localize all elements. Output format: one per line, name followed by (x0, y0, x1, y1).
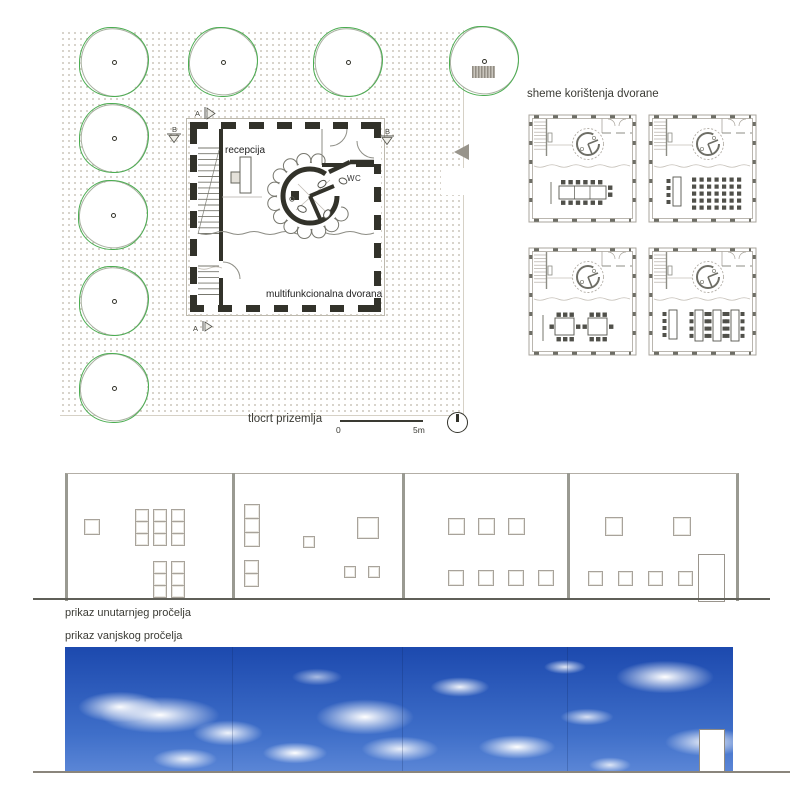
facade-panel-joint (567, 647, 568, 772)
window-opening (508, 570, 524, 586)
plan-caption: tlocrt prizemlja (248, 413, 322, 425)
scheme-drawing-meeting-tables (528, 247, 638, 356)
sky-photo-facade (65, 647, 733, 772)
section-marker-b-left: B (167, 125, 181, 143)
window-opening (171, 585, 185, 598)
svg-text:B: B (385, 127, 390, 136)
facade-panel-joint (232, 647, 233, 772)
scale-bar (340, 420, 423, 422)
window-opening (244, 532, 260, 547)
window-opening (244, 573, 259, 587)
interior-ground-line (33, 598, 770, 600)
section-marker-a-bottom: A (193, 321, 212, 333)
window-opening (538, 570, 554, 586)
elevation-divider (567, 473, 570, 600)
reception-label: recepcija (225, 145, 265, 156)
window-opening (344, 566, 356, 578)
window-opening (368, 566, 380, 578)
scheme-drawing-classroom (648, 247, 758, 356)
svg-text:A: A (193, 324, 198, 333)
scheme-drawing-theatre (648, 114, 758, 223)
scheme-meeting-tables (528, 247, 638, 356)
elevation-divider (402, 473, 405, 600)
facade-panel-joint (402, 647, 403, 772)
schemes-title: sheme korištenja dvorane (527, 88, 659, 100)
window-opening (153, 533, 167, 546)
window-opening (618, 571, 633, 586)
window-opening (448, 570, 464, 586)
window-opening (153, 585, 167, 598)
window-opening (588, 571, 603, 586)
section-marker-b-right: B (380, 127, 394, 145)
window-opening (478, 518, 495, 535)
window-opening (678, 571, 693, 586)
svg-text:B: B (172, 125, 177, 134)
window-opening (508, 518, 525, 535)
window-opening (171, 533, 185, 546)
window-opening (244, 560, 259, 574)
scheme-drawing-banquet (528, 114, 638, 223)
exterior-ground-line (33, 771, 790, 773)
scale-start-label: 0 (336, 425, 341, 435)
interior-elevation-caption: prikaz unutarnjeg pročelja (65, 607, 191, 619)
section-marker-a-top: A (195, 107, 215, 119)
scheme-banquet (528, 114, 638, 223)
window-opening (478, 570, 494, 586)
window-opening (244, 518, 260, 533)
svg-text:A: A (195, 109, 200, 118)
elevation-divider (232, 473, 235, 600)
scale-end-label: 5m (413, 425, 425, 435)
window-opening (357, 517, 379, 539)
floor-plan-drawing: A A B B (0, 0, 800, 460)
presentation-sheet: A A B B recepcija WC multifunkcionalna d… (0, 0, 800, 800)
exterior-elevation-caption: prikaz vanjskog pročelja (65, 630, 182, 642)
window-opening (84, 519, 100, 535)
window-opening (448, 518, 465, 535)
window-opening (605, 517, 623, 536)
hall-label: multifunkcionalna dvorana (266, 289, 382, 300)
window-opening (648, 571, 663, 586)
scheme-classroom (648, 247, 758, 356)
window-opening (244, 504, 260, 519)
exterior-door (699, 729, 725, 773)
window-opening (673, 517, 691, 536)
scheme-theatre (648, 114, 758, 223)
window-opening (135, 533, 149, 546)
window-opening (303, 536, 315, 548)
wc-label: WC (347, 174, 361, 183)
interior-door (698, 554, 725, 602)
north-arrow-icon (447, 412, 468, 433)
